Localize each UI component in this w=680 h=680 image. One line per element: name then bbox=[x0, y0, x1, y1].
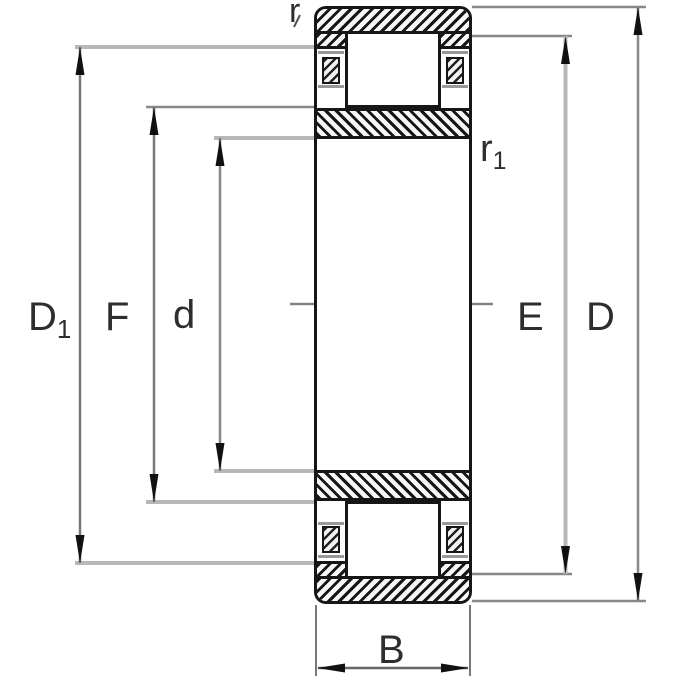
dim-label-d: d bbox=[173, 295, 195, 335]
dim-F-group bbox=[146, 107, 317, 502]
cage-section-top-left bbox=[322, 57, 340, 84]
cage-rail-bottom-right-upper bbox=[442, 522, 468, 525]
arrow-D-down bbox=[634, 573, 643, 601]
cage-rail-top-right-upper bbox=[442, 51, 468, 54]
arrow-F-up bbox=[150, 107, 159, 135]
outer-ring-flange-top-left bbox=[317, 34, 345, 49]
arrow-D-up bbox=[634, 7, 643, 35]
fillet-label-r: r bbox=[289, 0, 300, 28]
dim-label-D: D bbox=[586, 297, 615, 337]
dim-D-group bbox=[472, 7, 646, 601]
dim-label-D1: D1 bbox=[28, 297, 71, 342]
cage-section-top-right bbox=[446, 57, 464, 84]
cage-rail-bottom-left-lower bbox=[318, 555, 344, 558]
cage-rail-top-right-lower bbox=[442, 85, 468, 88]
dim-d-group bbox=[214, 138, 317, 471]
bearing-cross-section-diagram: D1 F d E D B r r1 bbox=[0, 0, 680, 680]
dim-label-E: E bbox=[517, 297, 544, 337]
arrow-B-right bbox=[441, 664, 469, 673]
arrow-D1-down bbox=[76, 535, 85, 563]
fillet-label-r1: r1 bbox=[480, 130, 507, 174]
inner-ring-top-section bbox=[317, 108, 469, 139]
bearing-outline bbox=[314, 6, 472, 604]
roller-bottom bbox=[345, 501, 441, 576]
outer-ring-flange-bottom-right bbox=[441, 561, 469, 576]
outer-ring-flange-top-right bbox=[441, 34, 469, 49]
outer-ring-flange-bottom-left bbox=[317, 561, 345, 576]
dim-label-F: F bbox=[105, 297, 129, 337]
outer-ring-bottom-section bbox=[317, 576, 469, 604]
arrow-d-up bbox=[216, 138, 225, 166]
cage-section-bottom-right bbox=[446, 526, 464, 553]
cage-section-bottom-left bbox=[322, 526, 340, 553]
inner-ring-bottom-section bbox=[317, 470, 469, 501]
arrow-E-down bbox=[561, 546, 570, 574]
arrow-B-left bbox=[317, 664, 345, 673]
cage-rail-top-left-lower bbox=[318, 85, 344, 88]
cage-rail-bottom-right-lower bbox=[442, 555, 468, 558]
arrow-d-down bbox=[216, 443, 225, 471]
cage-rail-top-left-upper bbox=[318, 51, 344, 54]
arrow-D1-up bbox=[76, 47, 85, 75]
roller-top bbox=[345, 34, 441, 108]
arrow-F-down bbox=[150, 474, 159, 502]
arrow-E-up bbox=[561, 36, 570, 64]
outer-ring-top-section bbox=[317, 9, 469, 34]
cage-rail-bottom-left-upper bbox=[318, 522, 344, 525]
dim-label-B: B bbox=[378, 630, 405, 670]
